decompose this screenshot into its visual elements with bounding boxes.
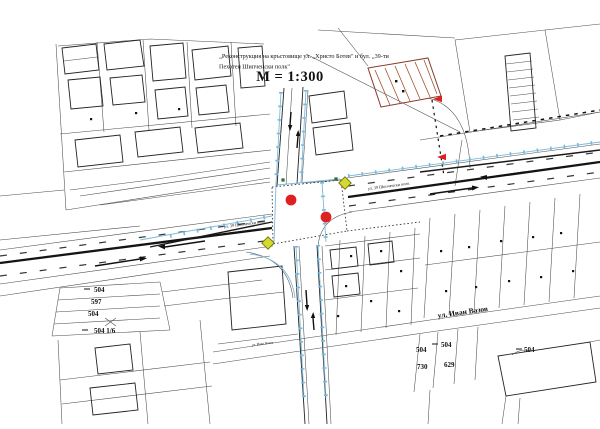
parcel-number-label: 504 [441, 341, 452, 349]
cadastral-plan-drawing: ул. 39 Шипченски полкул. 39 Шипченски по… [0, 0, 600, 429]
parcel-numbers: 504597504504 1/6504504730629504 [88, 286, 535, 371]
drawing-title-line1: „Реконструкция на кръстовище ул. „Христо… [219, 53, 389, 60]
parcel-number-label: 504 1/6 [94, 327, 116, 335]
hatched-building [368, 58, 441, 107]
parcel-number-label: 504 [88, 310, 99, 318]
street-bottom [213, 296, 600, 364]
red-survey-point-icon [321, 212, 332, 223]
road-main-east [347, 144, 600, 212]
drawing-scale: М = 1:300 [256, 69, 324, 85]
yellow-diamond-marker-icon [339, 177, 351, 189]
parcel-number-label: 504 [524, 346, 535, 354]
title-block: „Реконструкция на кръстовище ул. „Христо… [219, 53, 390, 85]
tree-icon [334, 177, 337, 180]
street-name-label: ул. Иван Вазов [437, 304, 488, 320]
parcel-lines-bottom-left [0, 256, 298, 424]
parcel-number-label: 597 [91, 298, 102, 306]
parcel-number-label: 629 [444, 361, 455, 369]
parcel-lines-south-east-block [325, 228, 420, 335]
survey-markers [262, 96, 446, 249]
traffic-arrows [95, 112, 525, 330]
parcel-number-label: 504 [94, 286, 105, 294]
point-marks [82, 108, 574, 349]
parcel-number-label: 730 [417, 363, 428, 371]
red-survey-point-icon [286, 195, 297, 206]
tree-icon [281, 178, 284, 181]
parcel-number-label: 504 [416, 346, 427, 354]
street-name-label: ул. Иван Вазов [252, 340, 274, 347]
